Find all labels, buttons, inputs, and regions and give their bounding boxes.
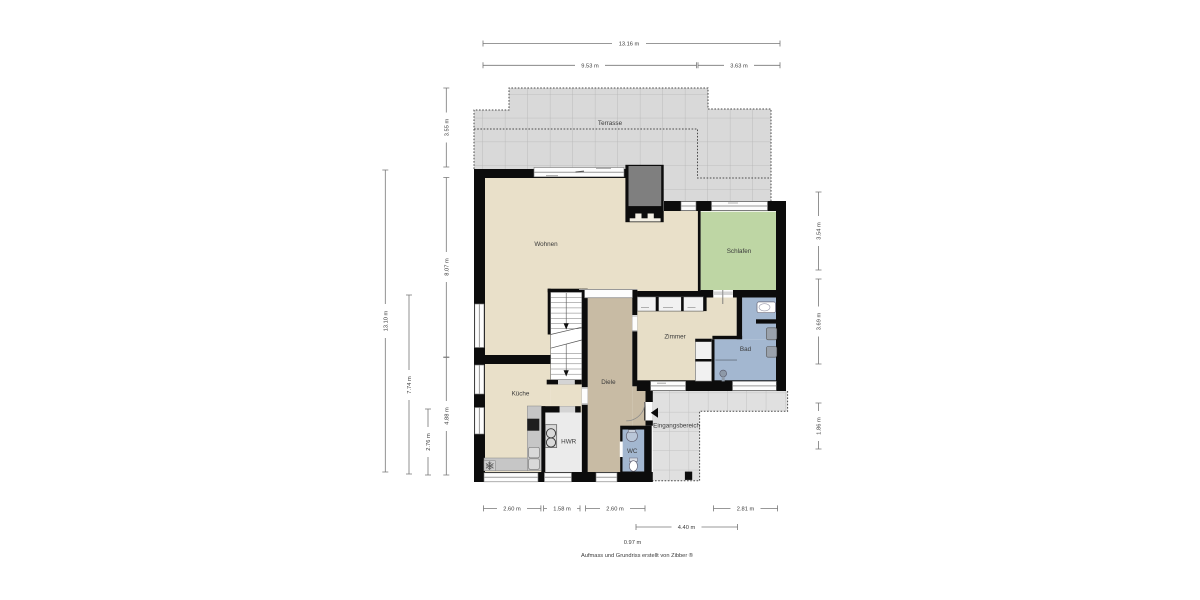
svg-text:HWR: HWR <box>561 439 576 446</box>
svg-text:2.81 m: 2.81 m <box>737 507 755 513</box>
svg-text:4.40 m: 4.40 m <box>678 525 696 531</box>
svg-text:8.07 m: 8.07 m <box>444 258 450 276</box>
svg-text:Wohnen: Wohnen <box>534 241 558 248</box>
svg-text:2.60 m: 2.60 m <box>503 507 521 513</box>
svg-text:4.88 m: 4.88 m <box>444 407 450 425</box>
svg-text:2.76 m: 2.76 m <box>426 433 432 451</box>
svg-text:1.58 m: 1.58 m <box>553 507 571 513</box>
svg-text:Diele: Diele <box>601 379 616 386</box>
svg-text:Terrasse: Terrasse <box>598 120 623 127</box>
svg-text:0.97 m: 0.97 m <box>624 540 642 546</box>
svg-text:1.86 m: 1.86 m <box>817 417 823 435</box>
svg-text:7.74 m: 7.74 m <box>407 376 413 394</box>
svg-text:Eingangsbereich: Eingangsbereich <box>653 422 700 429</box>
svg-text:13.10 m: 13.10 m <box>383 310 389 331</box>
svg-text:Küche: Küche <box>512 390 530 397</box>
svg-text:9.53 m: 9.53 m <box>581 63 599 69</box>
svg-text:3.55 m: 3.55 m <box>444 119 450 137</box>
svg-text:Bad: Bad <box>740 346 752 353</box>
svg-text:2.60 m: 2.60 m <box>606 507 624 513</box>
svg-text:3.69 m: 3.69 m <box>817 313 823 331</box>
svg-text:Schlafen: Schlafen <box>727 248 752 255</box>
svg-text:Aufmass und Grundriss erstellt: Aufmass und Grundriss erstellt von Zibbe… <box>581 552 694 559</box>
svg-text:13.16 m: 13.16 m <box>619 42 640 48</box>
svg-text:3.54 m: 3.54 m <box>817 222 823 240</box>
svg-text:Zimmer: Zimmer <box>664 333 685 340</box>
svg-text:WC: WC <box>627 448 638 455</box>
svg-text:3.63 m: 3.63 m <box>730 63 748 69</box>
